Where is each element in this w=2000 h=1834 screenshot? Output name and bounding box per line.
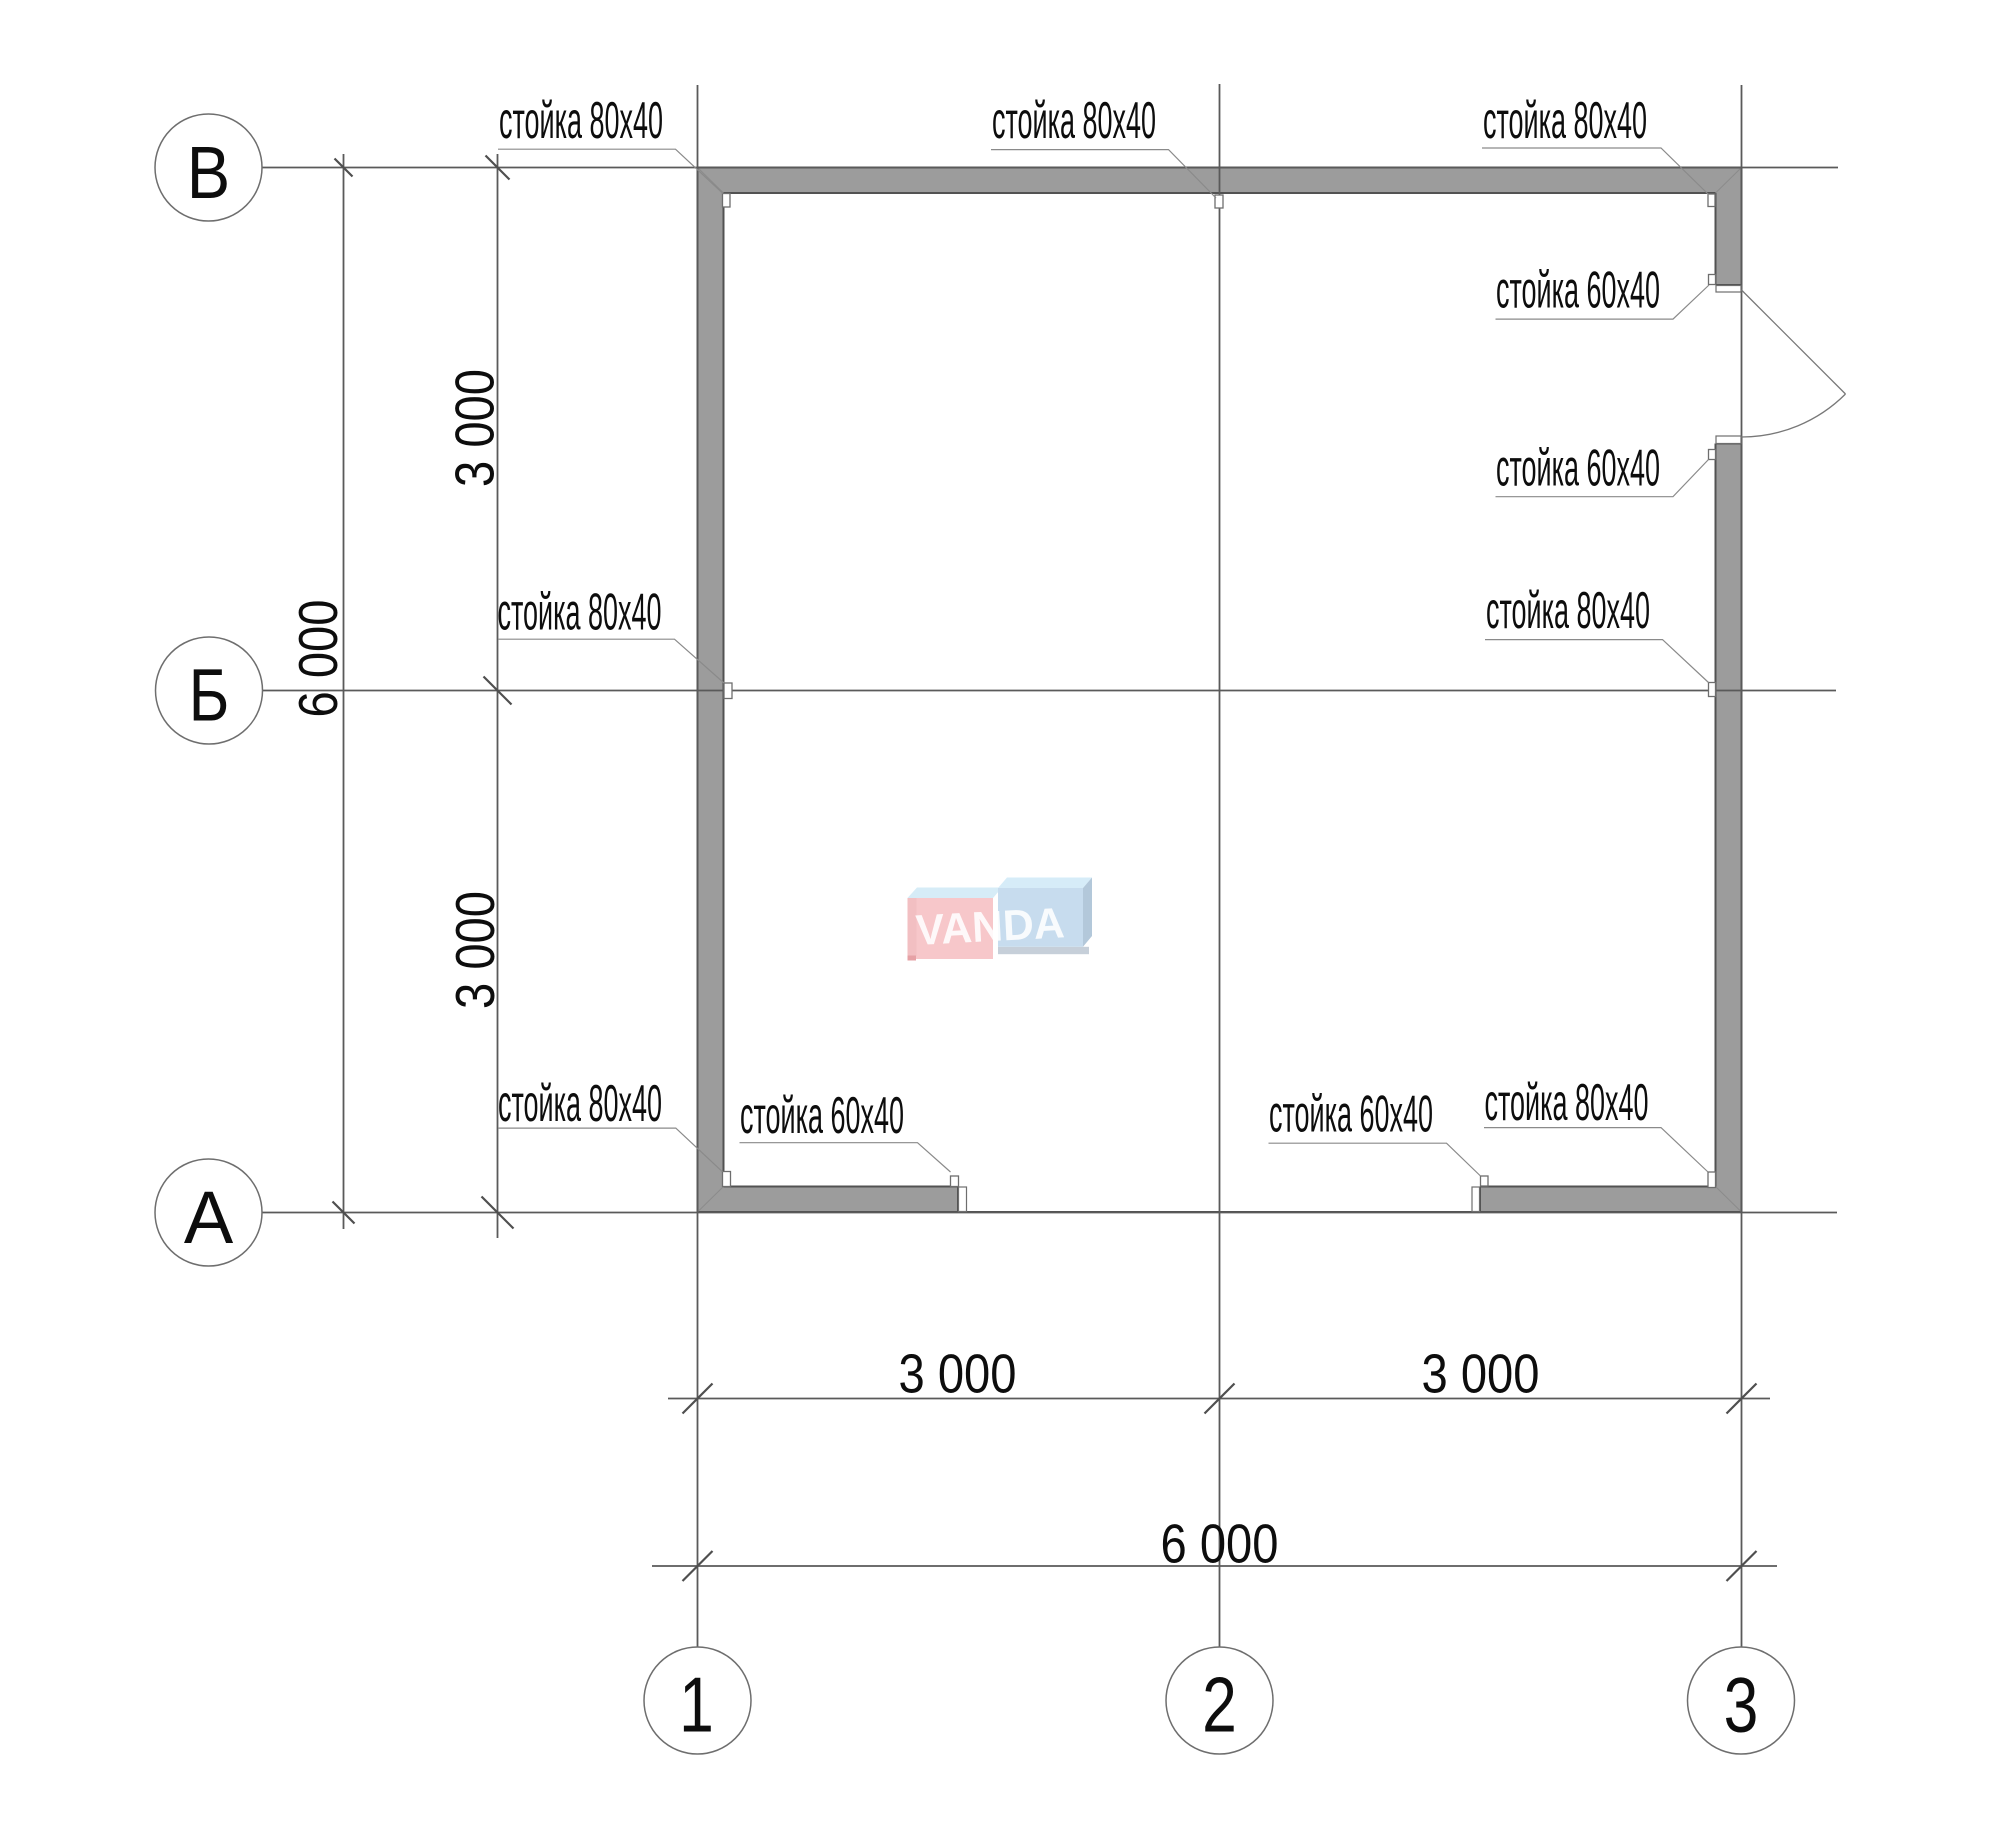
- svg-text:3 000: 3 000: [444, 891, 506, 1009]
- svg-text:стойка 60х40: стойка 60х40: [1269, 1086, 1433, 1144]
- svg-text:стойка 60х40: стойка 60х40: [1496, 262, 1660, 320]
- svg-text:стойка 80х40: стойка 80х40: [992, 92, 1156, 150]
- svg-text:стойка 60х40: стойка 60х40: [740, 1087, 904, 1145]
- svg-text:стойка 80х40: стойка 80х40: [498, 583, 662, 641]
- svg-text:3 000: 3 000: [444, 369, 506, 487]
- svg-text:Б: Б: [189, 654, 230, 736]
- svg-text:стойка 80х40: стойка 80х40: [1486, 582, 1650, 640]
- svg-text:2: 2: [1202, 1661, 1237, 1748]
- svg-text:1: 1: [679, 1661, 714, 1748]
- svg-text:стойка 80х40: стойка 80х40: [499, 92, 663, 150]
- svg-text:стойка 80х40: стойка 80х40: [1485, 1074, 1649, 1132]
- svg-text:В: В: [187, 131, 230, 214]
- svg-text:стойка 80х40: стойка 80х40: [1483, 92, 1647, 150]
- svg-text:3 000: 3 000: [899, 1343, 1017, 1405]
- svg-text:3 000: 3 000: [1422, 1343, 1540, 1405]
- svg-text:6 000: 6 000: [1161, 1513, 1279, 1575]
- svg-text:VANDA: VANDA: [915, 899, 1066, 955]
- svg-text:6 000: 6 000: [287, 600, 349, 718]
- svg-text:стойка 60х40: стойка 60х40: [1496, 439, 1660, 497]
- svg-text:стойка 80х40: стойка 80х40: [498, 1075, 662, 1133]
- svg-text:А: А: [184, 1176, 234, 1259]
- svg-text:3: 3: [1724, 1661, 1759, 1748]
